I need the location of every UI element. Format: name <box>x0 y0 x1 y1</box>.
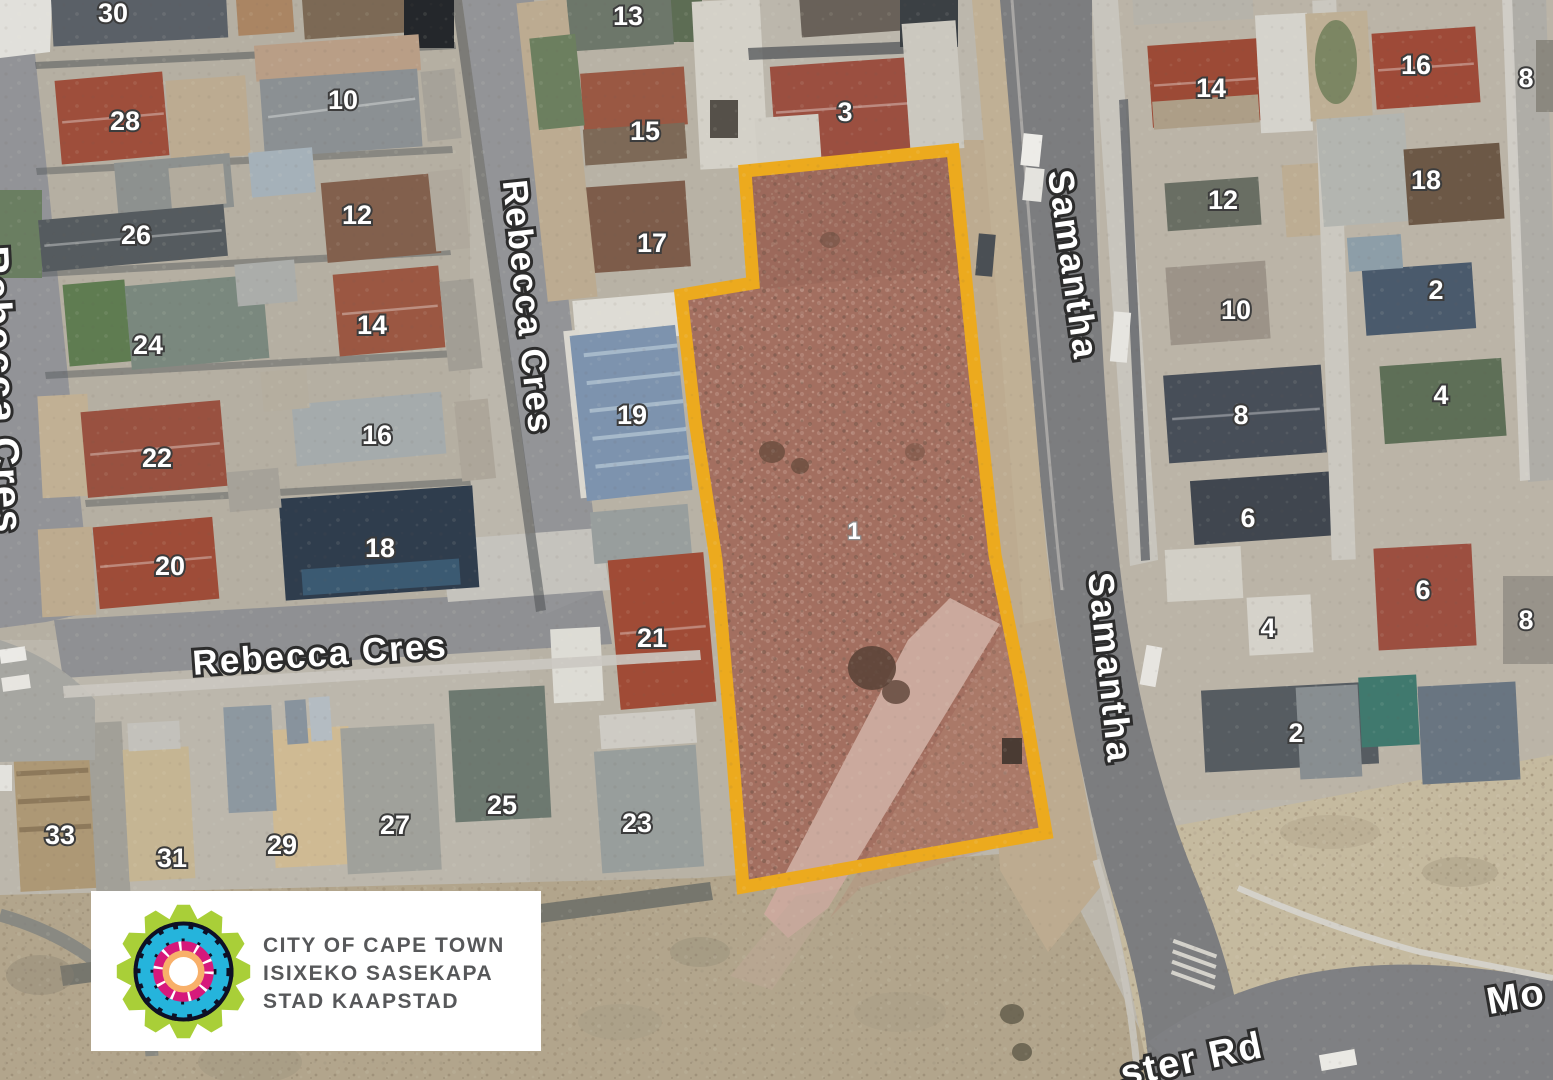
svg-text:20: 20 <box>155 551 185 581</box>
svg-text:8: 8 <box>1518 63 1533 93</box>
svg-text:14: 14 <box>1196 73 1226 103</box>
svg-text:4: 4 <box>1260 613 1275 643</box>
svg-text:14: 14 <box>357 310 387 340</box>
svg-text:33: 33 <box>45 820 75 850</box>
svg-text:13: 13 <box>613 1 643 31</box>
svg-text:19: 19 <box>617 400 647 430</box>
svg-text:CITY OF CAPE TOWN: CITY OF CAPE TOWN <box>263 934 505 957</box>
svg-text:30: 30 <box>98 0 128 28</box>
svg-text:18: 18 <box>1411 165 1441 195</box>
svg-text:STAD KAAPSTAD: STAD KAAPSTAD <box>263 990 459 1013</box>
svg-text:8: 8 <box>1233 400 1248 430</box>
svg-text:29: 29 <box>267 830 297 860</box>
svg-text:26: 26 <box>121 220 151 250</box>
svg-text:16: 16 <box>1401 50 1431 80</box>
svg-text:6: 6 <box>1240 503 1255 533</box>
svg-text:12: 12 <box>342 200 372 230</box>
svg-text:18: 18 <box>365 533 395 563</box>
svg-text:21: 21 <box>637 623 667 653</box>
svg-text:28: 28 <box>110 106 140 136</box>
svg-text:6: 6 <box>1415 575 1430 605</box>
svg-text:15: 15 <box>630 116 660 146</box>
svg-text:ISIXEKO SASEKAPA: ISIXEKO SASEKAPA <box>263 962 493 985</box>
svg-text:2: 2 <box>1428 275 1443 305</box>
svg-text:25: 25 <box>487 790 517 820</box>
svg-text:2: 2 <box>1288 718 1303 748</box>
svg-text:10: 10 <box>328 85 358 115</box>
svg-text:4: 4 <box>1433 380 1448 410</box>
svg-text:8: 8 <box>1518 605 1533 635</box>
svg-text:10: 10 <box>1221 295 1251 325</box>
svg-text:24: 24 <box>133 330 163 360</box>
svg-text:12: 12 <box>1208 185 1238 215</box>
svg-text:1: 1 <box>847 518 860 545</box>
svg-text:3: 3 <box>837 97 852 127</box>
svg-text:17: 17 <box>637 228 667 258</box>
svg-text:16: 16 <box>362 420 392 450</box>
svg-text:22: 22 <box>142 443 172 473</box>
svg-text:27: 27 <box>380 810 410 840</box>
svg-text:23: 23 <box>622 808 652 838</box>
svg-text:31: 31 <box>157 843 187 873</box>
